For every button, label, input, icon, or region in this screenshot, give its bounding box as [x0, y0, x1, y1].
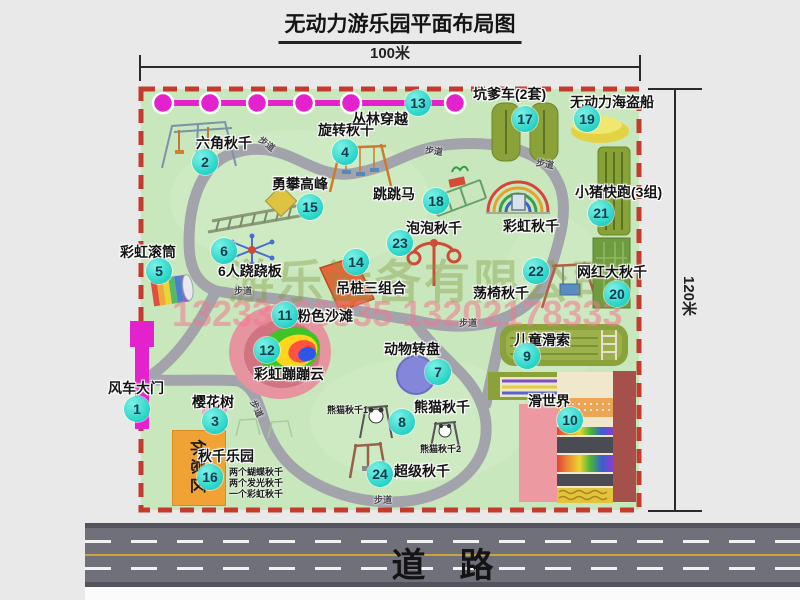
attraction-label-5: 彩虹滚筒: [120, 245, 176, 260]
panda-swing-1-label: 熊猫秋千1: [327, 403, 368, 416]
attraction-number-13: 13: [405, 90, 431, 116]
swing-park-note-line: 两个蝴蝶秋千: [229, 467, 283, 478]
attraction-label-rainbow-swing: 彩虹秋千: [503, 219, 559, 234]
attraction-label-8: 熊猫秋千: [414, 400, 470, 415]
attraction-label-13: 丛林穿越: [352, 112, 408, 127]
attraction-label-7: 动物转盘: [384, 342, 440, 357]
attraction-number-20: 20: [604, 281, 630, 307]
swing-park-notes: 两个蝴蝶秋千两个发光秋千一个彩虹秋千: [229, 467, 283, 499]
attraction-number-17: 17: [512, 106, 538, 132]
swing-park-note-line: 两个发光秋千: [229, 478, 283, 489]
attraction-number-18: 18: [423, 188, 449, 214]
attraction-number-16: 16: [197, 464, 223, 490]
attraction-number-22: 22: [523, 258, 549, 284]
attraction-number-24: 24: [367, 461, 393, 487]
attraction-number-9: 9: [514, 343, 540, 369]
attraction-label-15: 勇攀高峰: [272, 177, 328, 192]
attraction-number-19: 19: [574, 106, 600, 132]
attraction-number-5: 5: [146, 258, 172, 284]
attraction-label-23: 泡泡秋千: [406, 221, 462, 236]
attraction-label-11: 粉色沙滩: [297, 309, 353, 324]
park-layout-page: 无动力游乐园平面布局图 100米 120米: [0, 0, 800, 600]
attraction-label-22: 荡椅秋千: [473, 286, 529, 301]
attraction-label-12: 彩虹蹦蹦云: [254, 367, 324, 382]
attraction-number-23: 23: [387, 230, 413, 256]
attraction-number-8: 8: [389, 409, 415, 435]
attraction-label-1: 风车大门: [108, 381, 164, 396]
attraction-number-4: 4: [332, 139, 358, 165]
attraction-label-16: 秋千乐园: [198, 449, 254, 464]
attraction-label-17: 坑爹车(2套): [473, 87, 546, 102]
attraction-number-7: 7: [425, 359, 451, 385]
attraction-number-10: 10: [557, 407, 583, 433]
attraction-label-18: 跳跳马: [373, 187, 415, 202]
trail-label: 步道: [424, 143, 444, 158]
attraction-number-12: 12: [254, 337, 280, 363]
attraction-number-14: 14: [343, 249, 369, 275]
attraction-number-1: 1: [124, 396, 150, 422]
attraction-number-2: 2: [192, 149, 218, 175]
attraction-number-6: 6: [211, 238, 237, 264]
watermark-phone: 13233860535 13202178333: [172, 293, 622, 335]
attraction-number-3: 3: [202, 408, 228, 434]
swing-park-note-line: 一个彩虹秋千: [229, 489, 283, 500]
attraction-number-21: 21: [588, 200, 614, 226]
attraction-label-20: 网红大秋千: [577, 265, 647, 280]
panda-swing-2-label: 熊猫秋千2: [420, 442, 461, 455]
attraction-number-11: 11: [272, 302, 298, 328]
attraction-label-24: 超级秋千: [394, 464, 450, 479]
attraction-label-6: 6人跷跷板: [218, 264, 282, 279]
trail-label: 步道: [374, 493, 392, 506]
trail-label: 步道: [234, 284, 252, 297]
attraction-number-15: 15: [297, 194, 323, 220]
trail-label: 步道: [459, 316, 477, 329]
attraction-label-14: 吊桩三组合: [336, 281, 406, 296]
attraction-label-10: 滑世界: [528, 394, 570, 409]
attraction-label-21: 小猪快跑(3组): [575, 185, 662, 200]
